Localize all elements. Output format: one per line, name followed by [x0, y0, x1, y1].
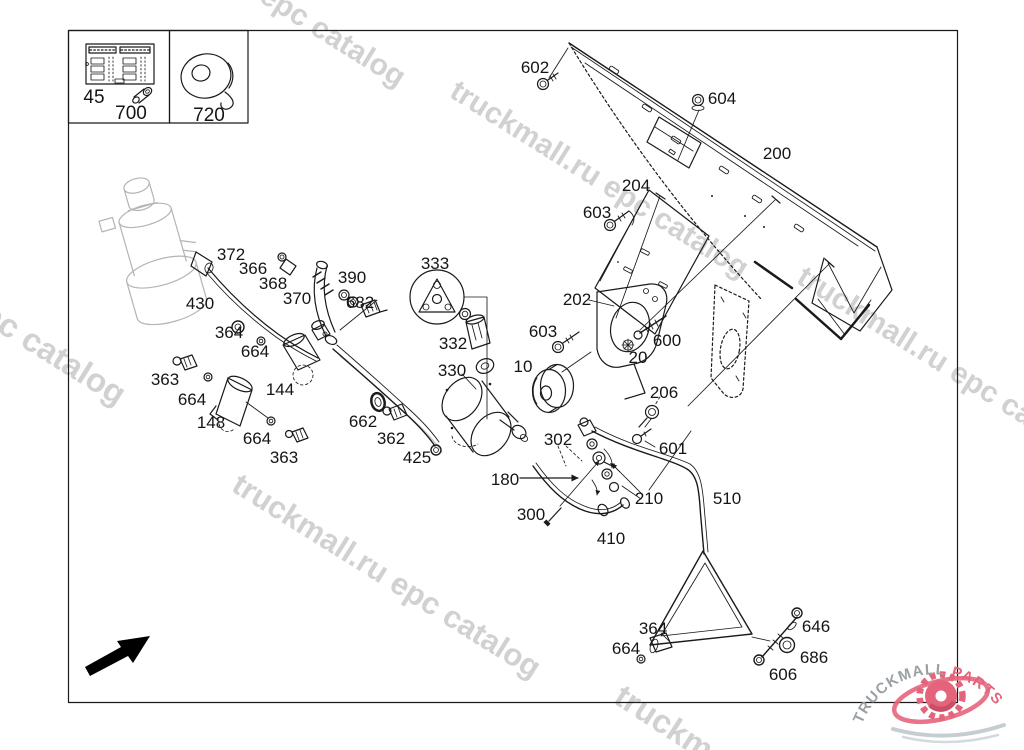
catalog-diagram-page: truckmall.ru epc catalogtruckmall.ru epc… [0, 0, 1024, 750]
bolt-606-group [754, 608, 802, 665]
watermark-text-3: truckmall.ru epc catalog [0, 180, 133, 413]
part-label-390: 390 [338, 268, 366, 287]
legend-tape-720-icon [177, 49, 235, 109]
part-label-664: 664 [241, 342, 269, 361]
part-label-370: 370 [283, 289, 311, 308]
legend-number-45: 45 [83, 87, 104, 108]
part-label-686: 686 [800, 648, 828, 667]
part-label-144: 144 [266, 380, 294, 399]
part-label-363: 363 [270, 448, 298, 467]
part-label-601: 601 [659, 439, 687, 458]
part-label-604: 604 [708, 89, 736, 108]
part-label-206: 206 [650, 383, 678, 402]
part-label-646: 646 [802, 617, 830, 636]
part-label-180: 180 [491, 470, 519, 489]
pump-330 [434, 370, 529, 464]
part-label-363: 363 [151, 370, 179, 389]
part-label-603: 603 [583, 203, 611, 222]
part-label-600: 600 [653, 331, 681, 350]
part-label-410: 410 [597, 529, 625, 548]
part-label-682: 682 [346, 293, 374, 312]
spring-366 [313, 272, 333, 295]
exploded-parts-diagram: truckmall.ru epc catalogtruckmall.ru epc… [0, 0, 1024, 750]
part-label-20: 20 [629, 348, 648, 367]
part-label-664: 664 [243, 429, 271, 448]
part-label-510: 510 [713, 489, 741, 508]
part-label-664: 664 [612, 639, 640, 658]
part-label-302: 302 [544, 430, 572, 449]
pulley-10 [533, 352, 592, 413]
shaft-332 [465, 313, 496, 376]
part-label-664: 664 [178, 390, 206, 409]
part-label-425: 425 [403, 448, 431, 467]
brand-logo: TRUCKMALL PARTS [850, 661, 1007, 742]
legend-number-700: 700 [115, 103, 147, 124]
part-label-204: 204 [622, 176, 650, 195]
part-label-10: 10 [514, 357, 533, 376]
bolt-300 [543, 461, 599, 527]
part-label-200: 200 [763, 144, 791, 163]
legend-plate-icon [86, 44, 154, 84]
part-label-364: 364 [215, 323, 243, 342]
oval-bracket [711, 285, 749, 397]
part-label-602: 602 [521, 58, 549, 77]
part-label-330: 330 [438, 361, 466, 380]
legend-bolt-700-icon [132, 86, 154, 104]
part-label-202: 202 [563, 290, 591, 309]
part-label-603: 603 [529, 322, 557, 341]
part-label-333: 333 [421, 254, 449, 273]
part-label-148: 148 [197, 413, 225, 432]
part-label-362: 362 [377, 429, 405, 448]
part-label-430: 430 [186, 294, 214, 313]
part-label-606: 606 [769, 665, 797, 684]
part-label-662: 662 [349, 412, 377, 431]
watermark-text-4: truckmall.ru epc catalog [226, 466, 547, 685]
legend-number-720: 720 [193, 105, 225, 126]
watermark-text-2: truckmall.ru epc catalog [791, 260, 1024, 471]
direction-arrow [85, 636, 150, 676]
part-label-210: 210 [635, 489, 663, 508]
part-label-364: 364 [639, 619, 667, 638]
part-label-300: 300 [517, 505, 545, 524]
part-label-332: 332 [439, 334, 467, 353]
